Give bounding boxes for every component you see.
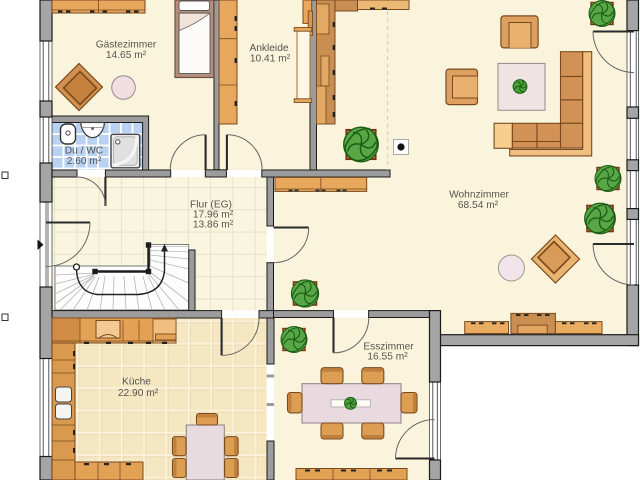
svg-text:Wohnzimmer: Wohnzimmer (449, 190, 509, 201)
svg-text:68.54 m²: 68.54 m² (458, 200, 499, 211)
svg-text:Gästezimmer: Gästezimmer (96, 40, 157, 51)
svg-text:10.41 m²: 10.41 m² (250, 54, 291, 65)
svg-text:Küche: Küche (122, 377, 151, 388)
svg-text:Du / WC: Du / WC (65, 146, 104, 157)
svg-text:22.90 m²: 22.90 m² (118, 388, 159, 399)
svg-text:2.60 m²: 2.60 m² (67, 156, 102, 167)
svg-text:13.86 m²: 13.86 m² (193, 220, 234, 231)
svg-text:14.65 m²: 14.65 m² (106, 50, 147, 61)
svg-text:Ankleide: Ankleide (249, 43, 288, 54)
svg-text:16.55 m²: 16.55 m² (367, 352, 408, 363)
